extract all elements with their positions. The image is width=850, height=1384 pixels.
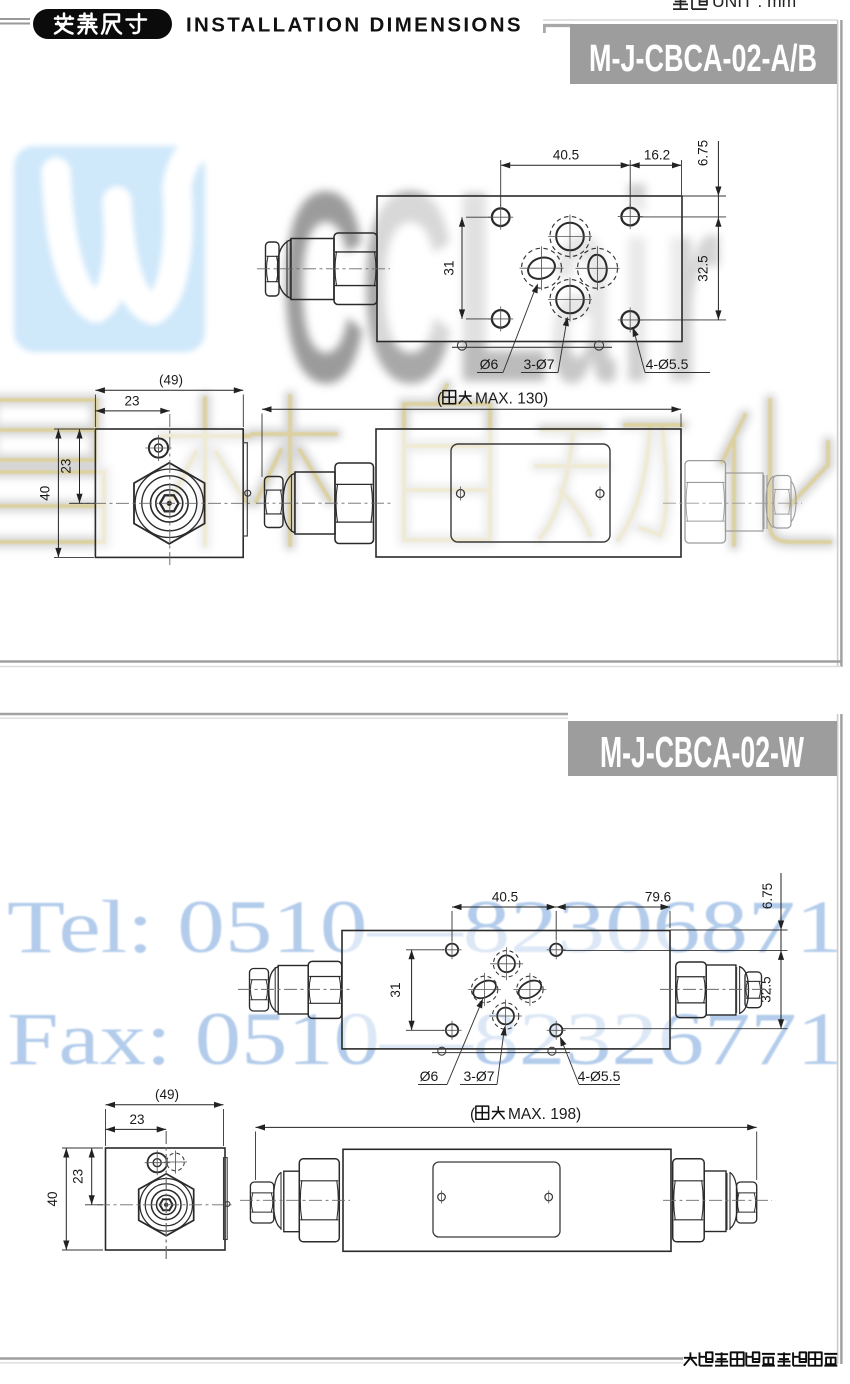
svg-text:(49): (49) <box>155 1087 179 1102</box>
svg-text:INSTALLATION DIMENSIONS: INSTALLATION DIMENSIONS <box>186 14 523 37</box>
svg-text:23: 23 <box>71 1169 86 1184</box>
svg-text:Ø6: Ø6 <box>420 1068 439 1084</box>
svg-text:MAX. 198): MAX. 198) <box>508 1106 581 1123</box>
svg-text:6.75: 6.75 <box>760 883 775 909</box>
svg-text:31: 31 <box>442 261 457 276</box>
svg-text:40.5: 40.5 <box>492 890 518 905</box>
svg-text:40: 40 <box>38 486 53 501</box>
svg-text:4-Ø5.5: 4-Ø5.5 <box>646 356 689 372</box>
svg-text:M-J-CBCA-02-W: M-J-CBCA-02-W <box>600 728 804 776</box>
svg-text:23: 23 <box>124 394 139 409</box>
svg-text:31: 31 <box>388 983 403 998</box>
svg-text:M-J-CBCA-02-A/B: M-J-CBCA-02-A/B <box>589 38 817 80</box>
svg-text:23: 23 <box>59 459 74 474</box>
svg-text:MAX. 130): MAX. 130) <box>475 391 548 408</box>
svg-text:6.75: 6.75 <box>696 140 711 166</box>
svg-text:Ø6: Ø6 <box>480 356 499 372</box>
svg-text:79.6: 79.6 <box>645 890 671 905</box>
svg-text:(49): (49) <box>159 373 183 388</box>
svg-text:16.2: 16.2 <box>644 148 670 163</box>
svg-text:3-Ø7: 3-Ø7 <box>523 356 554 372</box>
svg-text:(: ( <box>470 1106 476 1123</box>
svg-text:32.5: 32.5 <box>696 255 711 281</box>
svg-text:23: 23 <box>129 1112 144 1127</box>
svg-text:(: ( <box>437 391 443 408</box>
svg-text:4-Ø5.5: 4-Ø5.5 <box>578 1068 621 1084</box>
svg-text:40: 40 <box>45 1191 60 1206</box>
svg-text:3-Ø7: 3-Ø7 <box>463 1068 494 1084</box>
svg-text:40.5: 40.5 <box>553 148 579 163</box>
